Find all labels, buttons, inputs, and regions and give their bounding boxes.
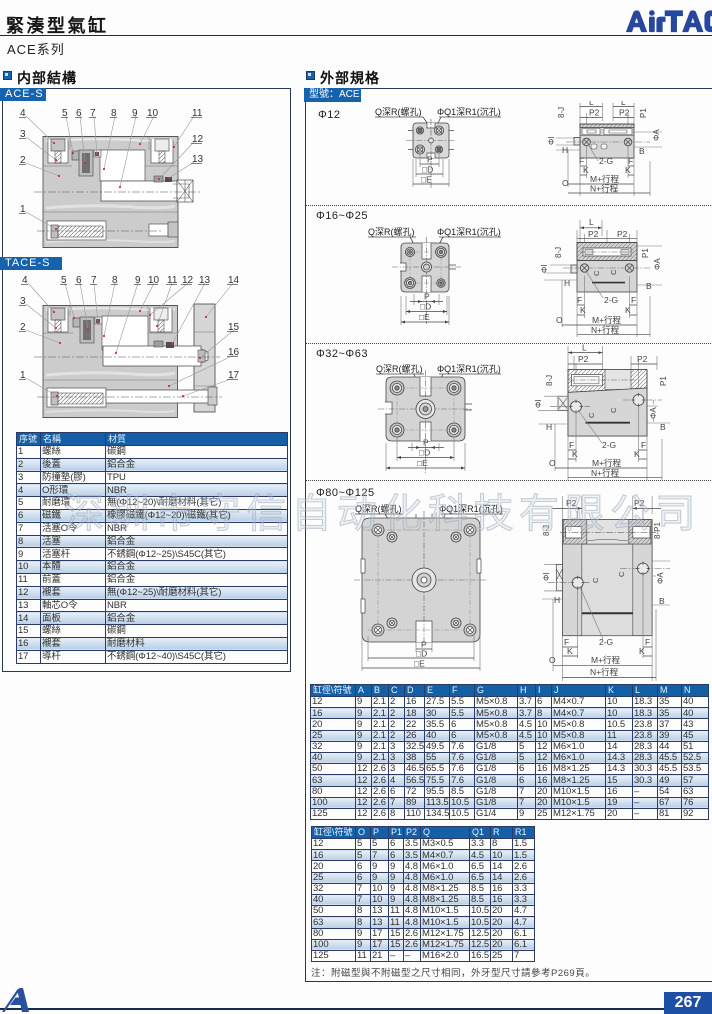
svg-text:M+行程: M+行程 [590,174,620,184]
svg-text:P2: P2 [637,354,648,364]
svg-text:P: P [423,438,429,448]
svg-text:O: O [549,655,556,665]
svg-text:ΦQ1深R1(沉孔): ΦQ1深R1(沉孔) [437,107,501,117]
svg-text:ΦQ1深R1(沉孔): ΦQ1深R1(沉孔) [437,364,501,374]
svg-text:ΦA: ΦA [649,407,658,419]
svg-text:L: L [621,101,626,107]
svg-text:Q深R(螺孔): Q深R(螺孔) [376,364,423,374]
svg-text:K: K [625,165,631,175]
svg-text:L: L [589,101,594,107]
svg-text:2-G: 2-G [599,156,613,166]
svg-text:B: B [646,281,652,291]
svg-text:8-J: 8-J [557,107,566,118]
svg-text:N+行程: N+行程 [591,325,620,335]
svg-text:P1: P1 [639,108,648,118]
svg-text:P2: P2 [578,354,589,364]
svg-text:□E: □E [414,659,425,669]
svg-text:C: C [592,270,601,276]
svg-text:F: F [577,295,582,305]
svg-text:□D: □D [419,448,430,458]
svg-text:P2: P2 [619,108,630,118]
svg-text:□D: □D [422,165,433,175]
svg-text:ΦA: ΦA [653,258,662,270]
svg-text:C: C [609,407,618,413]
svg-text:C: C [587,412,596,418]
svg-text:□E: □E [419,312,430,322]
svg-text:□D: □D [416,649,427,659]
svg-text:B: B [659,596,665,606]
svg-text:O: O [562,178,569,188]
svg-text:N+行程: N+行程 [590,667,619,677]
svg-text:K: K [634,449,640,459]
svg-text:O: O [549,458,556,468]
svg-text:ΦI: ΦI [540,264,549,273]
svg-text:F: F [645,637,650,647]
svg-text:P2: P2 [588,229,599,239]
svg-text:P: P [424,292,430,302]
svg-text:K: K [625,305,631,315]
svg-text:ΦI: ΦI [534,399,543,408]
svg-text:□D: □D [420,302,431,312]
svg-text:2-G: 2-G [602,440,616,450]
svg-text:P1: P1 [641,248,650,258]
svg-text:N+行程: N+行程 [591,468,620,478]
svg-text:2-G: 2-G [604,295,618,305]
svg-text:C: C [609,269,618,275]
svg-text:8-J: 8-J [554,247,563,258]
svg-text:F: F [641,440,646,450]
svg-text:2-G: 2-G [599,637,613,647]
svg-text:M+行程: M+行程 [591,655,621,665]
svg-text:N+行程: N+行程 [590,184,619,194]
svg-text:ΦI: ΦI [542,572,551,581]
svg-text:K: K [580,305,586,315]
svg-text:P2: P2 [589,108,600,118]
svg-text:□E: □E [421,175,432,185]
svg-text:H: H [546,422,552,432]
svg-text:ΦA: ΦA [656,572,665,584]
svg-text:L: L [589,217,594,227]
svg-text:P2: P2 [617,229,628,239]
svg-text:L: L [582,344,587,353]
svg-text:H: H [554,595,560,605]
svg-text:8-J: 8-J [545,375,554,386]
svg-text:H: H [562,145,568,155]
svg-text:P: P [427,155,433,165]
svg-text:Q深R(螺孔): Q深R(螺孔) [368,227,415,237]
svg-text:ΦA: ΦA [652,129,661,141]
svg-text:ΦI: ΦI [547,136,556,145]
svg-text:Q深R(螺孔): Q深R(螺孔) [375,107,422,117]
svg-text:C: C [617,571,626,577]
svg-text:K: K [639,646,645,656]
svg-text:C: C [591,577,600,583]
svg-text:M+行程: M+行程 [592,458,622,468]
svg-text:O: O [556,315,563,325]
svg-text:F: F [631,295,636,305]
svg-text:K: K [583,165,589,175]
svg-text:□E: □E [417,458,428,468]
svg-text:ΦQ1深R1(沉孔): ΦQ1深R1(沉孔) [437,227,501,237]
svg-text:P1: P1 [659,376,668,386]
svg-text:K: K [567,646,573,656]
svg-text:H: H [564,278,570,288]
svg-text:B: B [660,422,666,432]
svg-text:B: B [639,146,645,156]
svg-text:K: K [572,449,578,459]
svg-text:M+行程: M+行程 [592,315,622,325]
